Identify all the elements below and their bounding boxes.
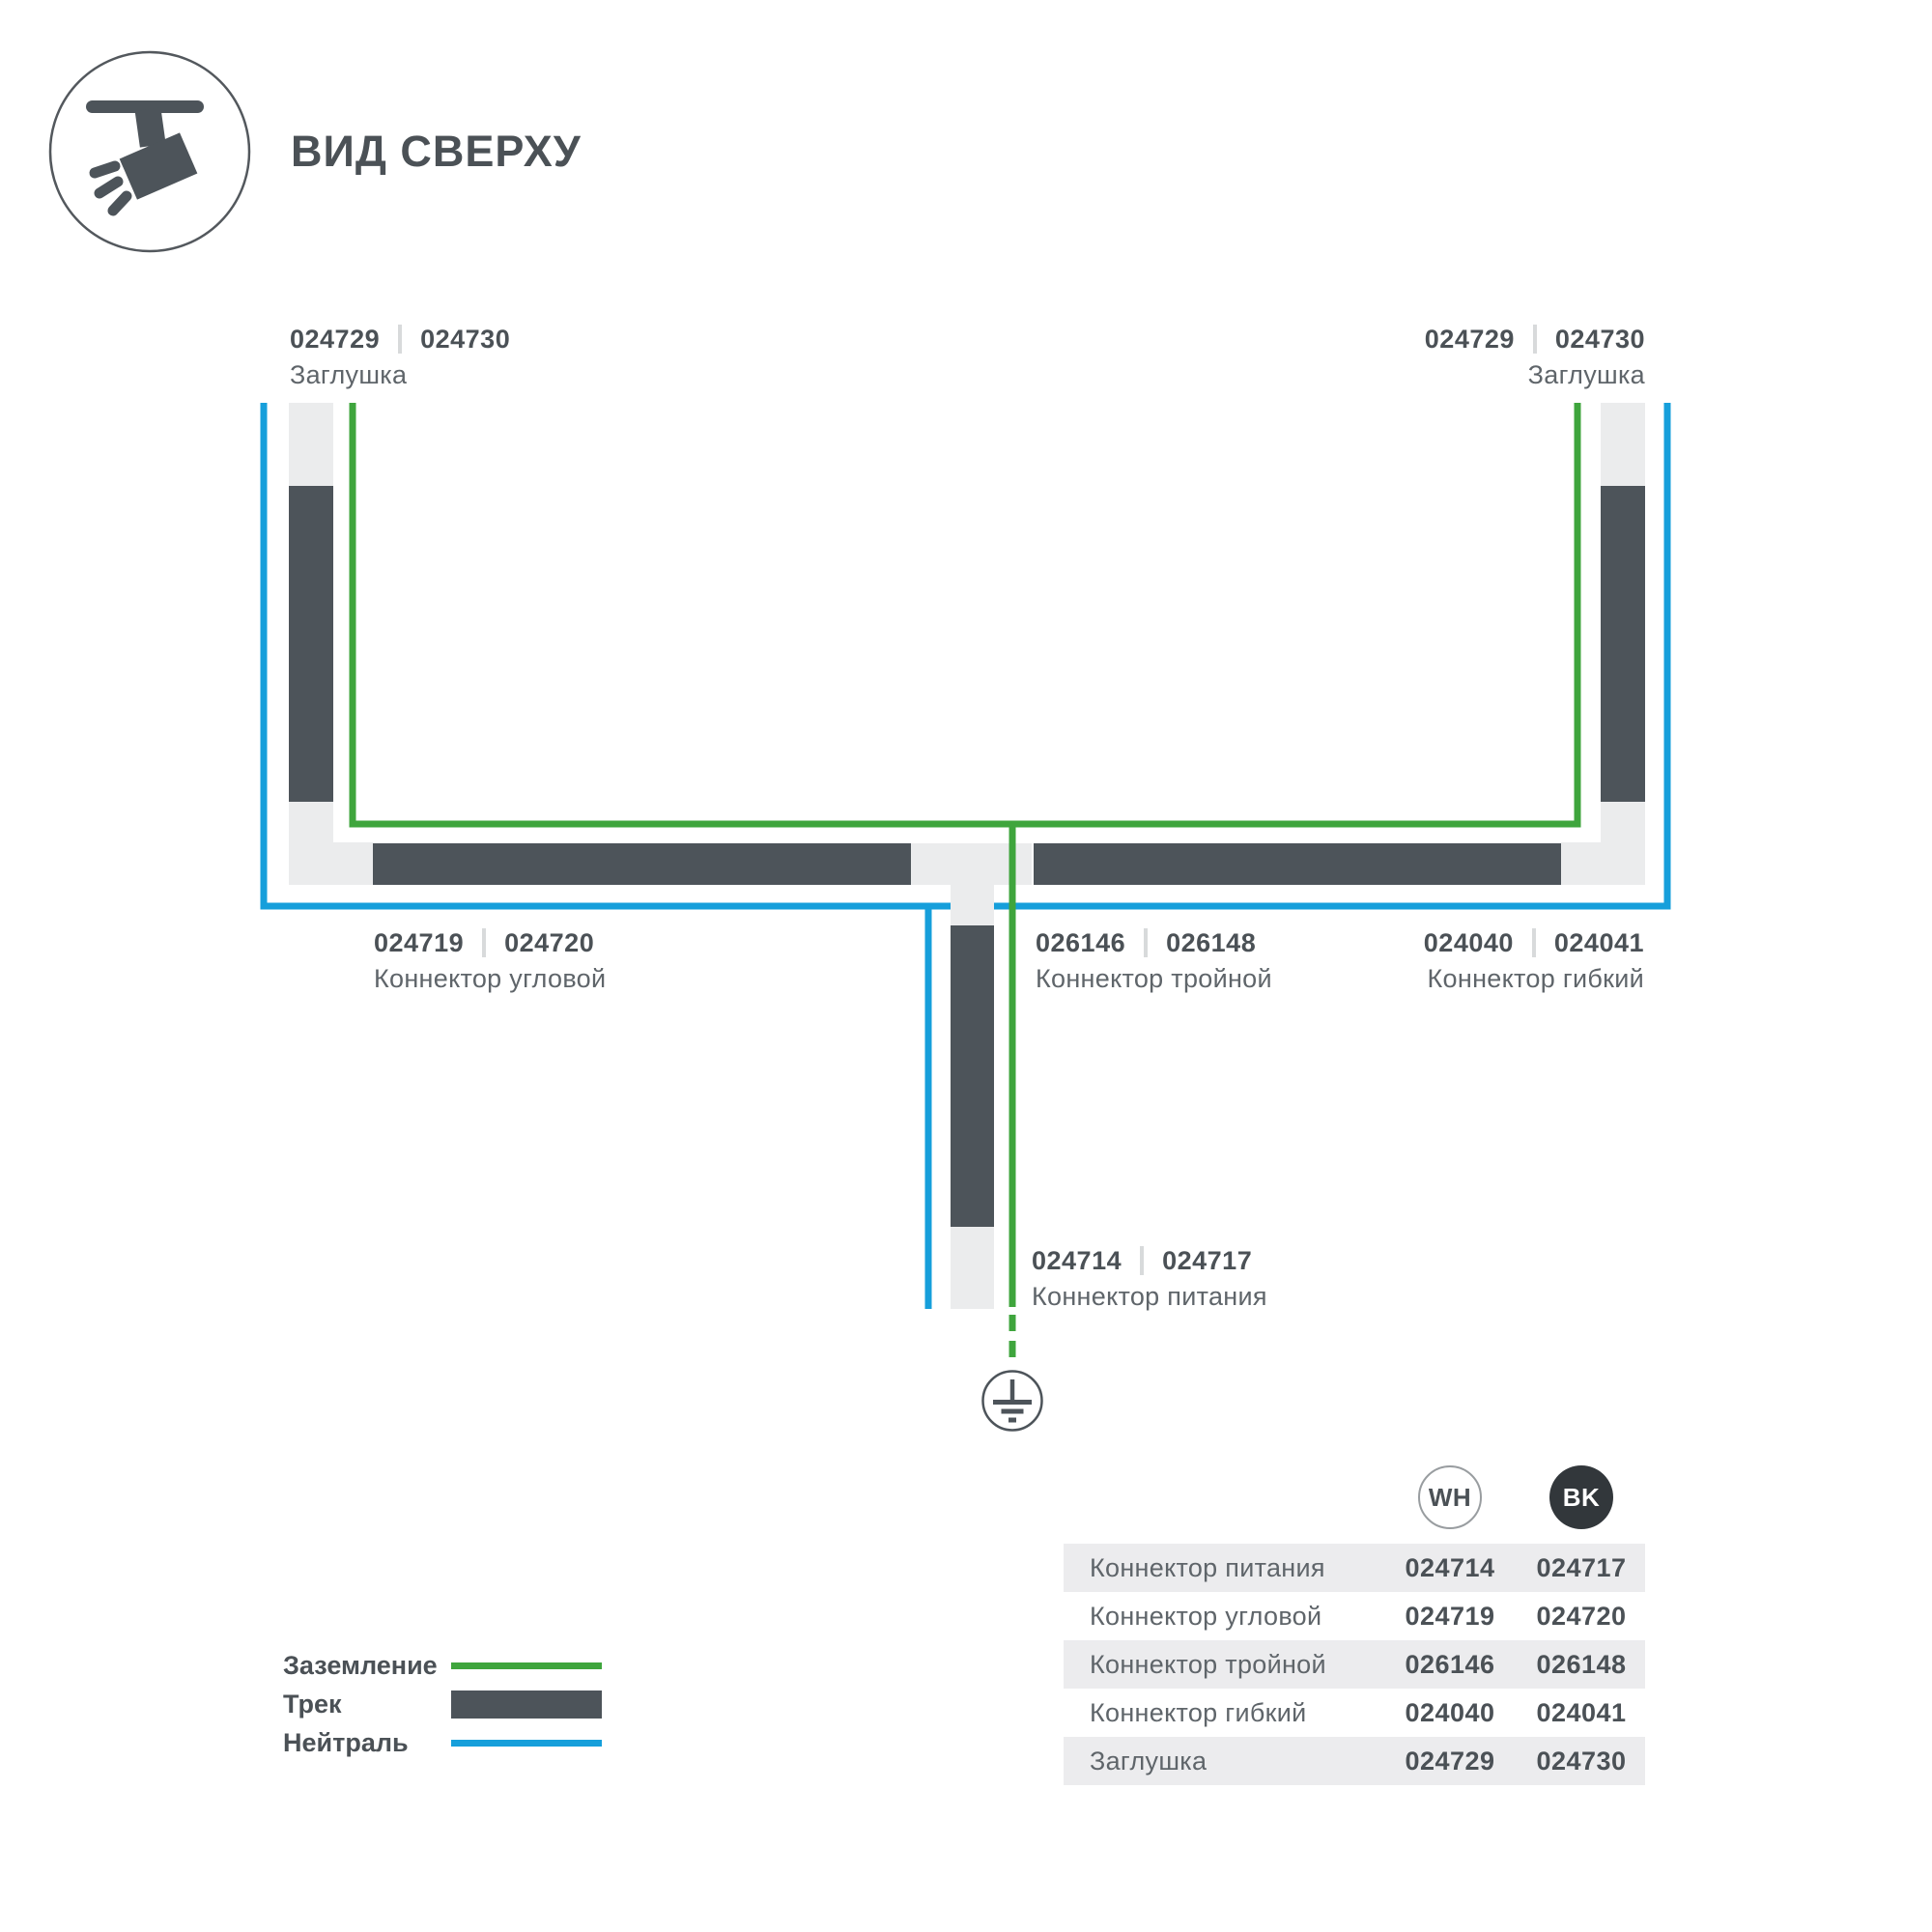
row-code-bk: 024720 xyxy=(1518,1602,1645,1632)
track-left-vertical xyxy=(289,486,333,802)
legend: Заземление Трек Нейтраль xyxy=(283,1646,602,1762)
track-center-vertical xyxy=(951,925,994,1227)
part-name: Заглушка xyxy=(1425,362,1645,388)
track-right-vertical xyxy=(1601,486,1645,802)
earth-ground-icon xyxy=(983,1372,1042,1431)
table-row: Коннектор тройной 026146 026148 xyxy=(1064,1640,1645,1689)
label-power-connector: 024714 024717 Коннектор питания xyxy=(1032,1246,1267,1310)
triple-connector-leg xyxy=(951,843,994,925)
code-separator xyxy=(398,325,402,354)
ground-line-swatch xyxy=(451,1662,602,1669)
label-flex-connector: 024040 024041 Коннектор гибкий xyxy=(1424,928,1644,992)
code-separator xyxy=(1140,1246,1144,1275)
ground-wire xyxy=(353,403,1577,824)
article-codes: 024719 024720 xyxy=(374,928,606,957)
legend-item-neutral: Нейтраль xyxy=(283,1723,602,1762)
row-name: Коннектор гибкий xyxy=(1064,1698,1382,1728)
track-right-horizontal xyxy=(1034,843,1561,885)
article-code-bk: 024717 xyxy=(1162,1248,1252,1274)
article-code-bk: 024730 xyxy=(420,327,510,353)
neutral-wire xyxy=(264,403,1667,906)
row-code-bk: 026148 xyxy=(1518,1650,1645,1680)
article-code-bk: 024041 xyxy=(1554,930,1644,956)
code-separator xyxy=(482,928,486,957)
row-name: Заглушка xyxy=(1064,1747,1382,1776)
article-codes: 024714 024717 xyxy=(1032,1246,1267,1275)
endcap-right xyxy=(1601,403,1645,486)
row-code-wh: 026146 xyxy=(1382,1650,1518,1680)
table-header: WH BK xyxy=(1064,1465,1645,1529)
table-row: Заглушка 024729 024730 xyxy=(1064,1737,1645,1785)
table-row: Коннектор угловой 024719 024720 xyxy=(1064,1592,1645,1640)
row-code-wh: 024719 xyxy=(1382,1602,1518,1632)
endcap-left xyxy=(289,403,333,486)
article-codes: 026146 026148 xyxy=(1036,928,1272,957)
track-bar-swatch xyxy=(451,1690,602,1719)
row-name: Коннектор питания xyxy=(1064,1553,1382,1583)
legend-item-track: Трек xyxy=(283,1685,602,1723)
label-endcap-right: 024729 024730 Заглушка xyxy=(1425,325,1645,388)
legend-label: Нейтраль xyxy=(283,1728,451,1758)
article-code-wh: 024714 xyxy=(1032,1248,1122,1274)
article-color-table: WH BK Коннектор питания 024714 024717 Ко… xyxy=(1064,1465,1645,1785)
row-code-bk: 024717 xyxy=(1518,1553,1645,1583)
power-connector xyxy=(951,1227,994,1309)
article-codes: 024040 024041 xyxy=(1424,928,1644,957)
row-name: Коннектор угловой xyxy=(1064,1602,1382,1632)
part-name: Коннектор угловой xyxy=(374,966,606,992)
legend-item-ground: Заземление xyxy=(283,1646,602,1685)
article-code-wh: 024719 xyxy=(374,930,464,956)
corner-connector-left xyxy=(289,842,373,885)
article-code-wh: 026146 xyxy=(1036,930,1125,956)
part-name: Коннектор тройной xyxy=(1036,966,1272,992)
article-code-bk: 026148 xyxy=(1166,930,1256,956)
article-code-wh: 024729 xyxy=(290,327,380,353)
label-triple-connector: 026146 026148 Коннектор тройной xyxy=(1036,928,1272,992)
article-codes: 024729 024730 xyxy=(290,325,510,354)
label-endcap-left: 024729 024730 Заглушка xyxy=(290,325,510,388)
wh-color-badge: WH xyxy=(1418,1465,1482,1529)
article-code-bk: 024720 xyxy=(504,930,594,956)
legend-label: Трек xyxy=(283,1690,451,1719)
bk-label: BK xyxy=(1563,1483,1601,1513)
table-row: Коннектор питания 024714 024717 xyxy=(1064,1544,1645,1592)
code-separator xyxy=(1532,928,1536,957)
part-name: Коннектор гибкий xyxy=(1424,966,1644,992)
wh-label: WH xyxy=(1429,1483,1471,1513)
row-code-bk: 024041 xyxy=(1518,1698,1645,1728)
track-left-horizontal xyxy=(373,843,911,885)
corner-connector-right xyxy=(1561,842,1645,885)
bk-color-badge: BK xyxy=(1549,1465,1613,1529)
row-code-wh: 024729 xyxy=(1382,1747,1518,1776)
row-code-bk: 024730 xyxy=(1518,1747,1645,1776)
code-separator xyxy=(1144,928,1148,957)
article-code-bk: 024730 xyxy=(1555,327,1645,353)
page: ВИД СВЕРХУ xyxy=(0,0,1932,1932)
table-row: Коннектор гибкий 024040 024041 xyxy=(1064,1689,1645,1737)
article-code-wh: 024729 xyxy=(1425,327,1515,353)
part-name: Коннектор питания xyxy=(1032,1284,1267,1310)
part-name: Заглушка xyxy=(290,362,510,388)
row-code-wh: 024714 xyxy=(1382,1553,1518,1583)
legend-label: Заземление xyxy=(283,1651,451,1681)
label-corner-connector: 024719 024720 Коннектор угловой xyxy=(374,928,606,992)
row-code-wh: 024040 xyxy=(1382,1698,1518,1728)
article-codes: 024729 024730 xyxy=(1425,325,1645,354)
code-separator xyxy=(1533,325,1537,354)
row-name: Коннектор тройной xyxy=(1064,1650,1382,1680)
neutral-line-swatch xyxy=(451,1740,602,1747)
article-code-wh: 024040 xyxy=(1424,930,1514,956)
